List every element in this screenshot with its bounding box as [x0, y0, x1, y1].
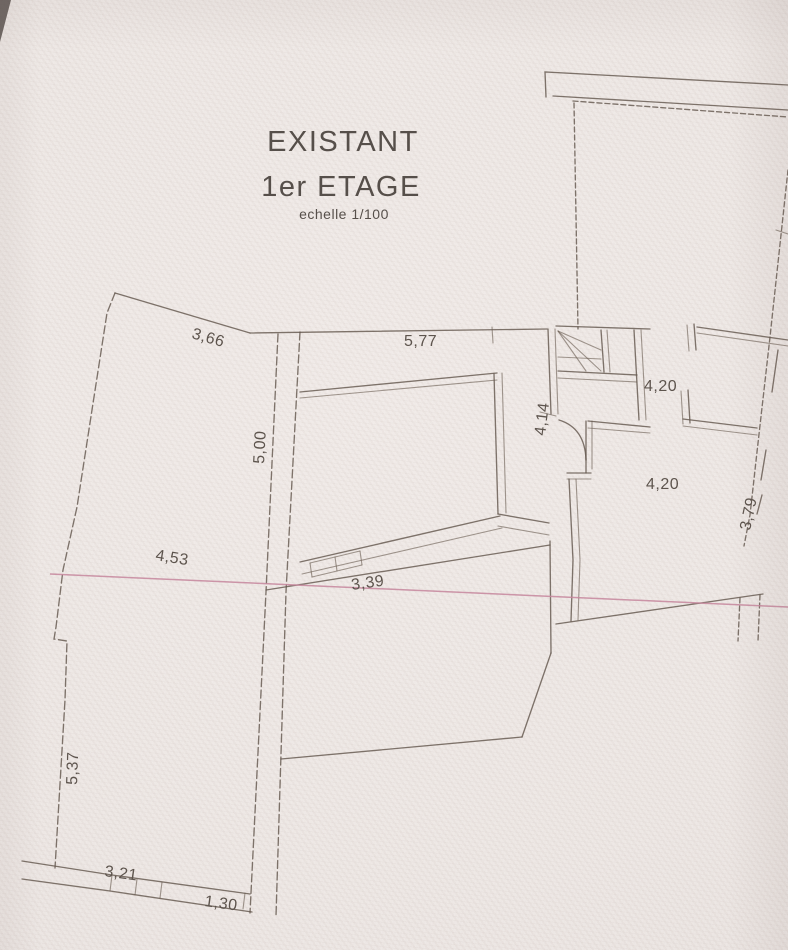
interior-walls: [250, 332, 757, 916]
window-symbol-tick-right: [360, 551, 362, 565]
stair-bottom-wall-2: [558, 378, 637, 382]
room-bottom-wall: [281, 737, 522, 759]
right-room-stub-2: [688, 390, 690, 423]
lower-right-stub-2: [758, 595, 760, 641]
stair-top-wall: [556, 326, 650, 329]
pink-survey-line: [50, 574, 788, 607]
dimension-label-corridor: 3,39: [350, 573, 385, 594]
upper-room-left-wall: [574, 103, 578, 329]
corridor-wall-upper-1: [300, 516, 500, 562]
floor-plan-drawing: EXISTANT 1er ETAGE echelle 1/100 3,66 5,…: [0, 0, 788, 950]
dimension-labels: 3,66 5,77 4,20 4,14 4,20 5,00 4,53 3,39 …: [64, 326, 761, 915]
dimension-label-lower-left-wall: 5,37: [64, 751, 82, 785]
plan-scale: echelle 1/100: [299, 206, 389, 222]
upper-wall-stub-b: [694, 324, 696, 350]
right-wall-segment-1: [772, 350, 778, 392]
dimension-label-right-room: 4,20: [646, 476, 679, 493]
dimension-label-mid-left: 4,53: [154, 547, 189, 569]
top-wall: [250, 329, 547, 333]
dimension-label-bottom-opening: 1,30: [203, 893, 238, 914]
centre-link-wall-2: [498, 526, 549, 535]
stair-bottom-wall-1: [558, 371, 637, 375]
central-vertical-wall-2: [576, 479, 580, 620]
plan-title: EXISTANT: [267, 126, 419, 158]
room-diagonal-wall: [522, 653, 551, 737]
bottom-wall-tick-4: [243, 893, 245, 909]
balcony-outer-edge: [545, 72, 788, 97]
centre-link-wall-1: [498, 514, 549, 523]
dimension-label-left-interior-wall: 5,00: [251, 430, 270, 464]
dimension-label-top-width: 5,77: [404, 333, 437, 350]
door-swing-arc: [559, 420, 586, 460]
right-room-wall-2: [683, 426, 757, 435]
stair-mid-wall-1: [601, 330, 604, 372]
staircase: [540, 326, 650, 420]
centre-wall-2: [502, 373, 506, 513]
centre-wall-1: [494, 374, 498, 514]
building-outline: [54, 170, 788, 868]
hall-corner-wall-h2: [588, 428, 650, 433]
top-left-diagonal-wall: [115, 293, 250, 333]
stair-mid-wall-2: [607, 330, 610, 372]
right-room-wall-1: [683, 419, 757, 428]
corridor-wall-upper-2: [302, 528, 502, 574]
hall-corner-wall-h1: [588, 421, 650, 427]
upper-right-room-wall-1: [697, 327, 788, 340]
corridor-wall-lower: [266, 545, 550, 590]
bottom-wall-tick-3: [160, 882, 162, 898]
window-symbol-tick-left: [310, 563, 312, 577]
stair-winder-line-1: [558, 331, 601, 371]
plan-floor: 1er ETAGE: [261, 171, 421, 203]
title-block: EXISTANT 1er ETAGE echelle 1/100: [261, 126, 421, 222]
corridor-walls: [266, 516, 550, 590]
dimension-label-right-boundary: 3,79: [737, 496, 761, 532]
central-vertical-wall-1: [569, 479, 573, 621]
dimension-label-stair-hall: 4,14: [532, 402, 553, 437]
right-wall-segment-2: [761, 450, 766, 480]
stair-step-line: [558, 357, 601, 359]
right-boundary-wall: [744, 170, 788, 546]
stair-left-wall-1: [548, 329, 551, 414]
stair-right-wall-2: [641, 330, 646, 420]
left-interior-wall-a: [250, 334, 278, 913]
balcony-walls: [545, 72, 788, 351]
dimension-label-upper-right-room: 4,20: [644, 378, 677, 395]
window-symbol-tick-mid: [335, 557, 337, 571]
upper-right-room-wall-2: [697, 333, 788, 346]
left-interior-wall-b: [276, 332, 300, 916]
floor-plan-photo: EXISTANT 1er ETAGE echelle 1/100 3,66 5,…: [0, 0, 788, 950]
upper-wall-stub-a: [687, 325, 689, 351]
photo-corner-shadow: [0, 0, 11, 42]
lower-centre-room: [281, 541, 551, 759]
dimension-label-bottom-wall: 3,21: [103, 863, 138, 884]
dimension-label-top-left-diagonal: 3,66: [190, 326, 227, 351]
